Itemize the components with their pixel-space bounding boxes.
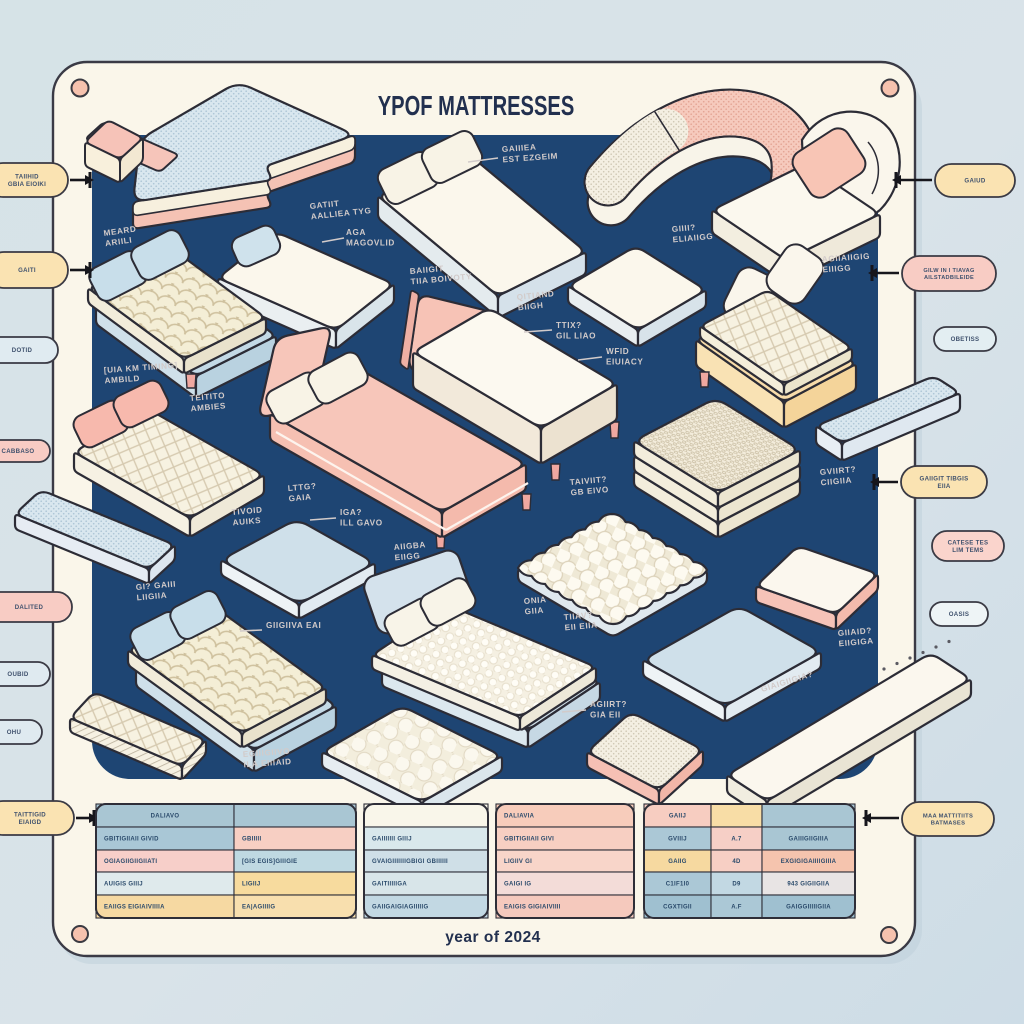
svg-text:GAIGI IG: GAIGI IG (504, 882, 531, 888)
svg-text:GAIIJ: GAIIJ (669, 814, 686, 820)
svg-text:GVAIGIIIIIIIGBIGI GBIIIIII: GVAIGIIIIIIIGBIGI GBIIIIII (372, 859, 448, 865)
svg-text:GBITIGIIAII GIVID: GBITIGIIAII GIVID (104, 837, 159, 843)
svg-text:GVIIIJ: GVIIIJ (668, 837, 687, 843)
svg-text:EIIA: EIIA (937, 483, 950, 490)
svg-text:EIUIACY: EIUIACY (606, 357, 643, 366)
svg-text:AUIGIS GIIIJ: AUIGIS GIIIJ (104, 882, 143, 888)
svg-text:CABBASO: CABBASO (2, 448, 35, 455)
svg-text:EA|AGIIIIG: EA|AGIIIIG (242, 905, 275, 911)
svg-text:GAIUD: GAIUD (964, 178, 985, 185)
svg-text:GBIIIII: GBIIIII (242, 837, 261, 843)
svg-text:YPOF MATTRESSES: YPOF MATTRESSES (378, 91, 575, 122)
svg-text:GAIIIGIIGIIIA: GAIIIGIIGIIIA (789, 837, 829, 843)
svg-text:GILW IN I TIAVAG: GILW IN I TIAVAG (923, 268, 974, 274)
svg-text:4D: 4D (732, 859, 741, 865)
svg-text:GBIA EIOIKI: GBIA EIOIKI (8, 181, 46, 188)
svg-text:DALITED: DALITED (15, 604, 44, 611)
svg-text:A.F: A.F (731, 905, 742, 911)
svg-text:GAIGGIIIIIGIIA: GAIGGIIIIIGIIA (786, 905, 831, 911)
svg-text:LIM TEMS: LIM TEMS (952, 547, 984, 554)
svg-text:OGIAGIIGIIGIIATI: OGIAGIIGIIGIIATI (104, 859, 157, 865)
svg-text:OASIS: OASIS (949, 611, 969, 618)
svg-text:MAGOVLID: MAGOVLID (346, 238, 395, 247)
svg-text:LIGIIJ: LIGIIJ (242, 882, 260, 888)
svg-text:EXGIGIGAIIIIGIIIA: EXGIGIGAIIIIGIIIA (781, 859, 837, 865)
svg-text:ILL GAVO: ILL GAVO (340, 518, 383, 527)
svg-text:GAIIG: GAIIG (668, 859, 687, 865)
svg-text:EIAIGD: EIAIGD (19, 819, 42, 826)
svg-text:GAITIIIIIGA: GAITIIIIIGA (372, 882, 407, 888)
svg-text:AGIIRT?: AGIIRT? (590, 700, 627, 709)
svg-text:D9: D9 (732, 882, 741, 888)
svg-text:TAIIHID: TAIIHID (15, 173, 39, 180)
svg-text:GIIA: GIIA (524, 606, 544, 617)
svg-text:GAIIGAIGIAGIIIIIG: GAIIGAIGIAGIIIIIG (372, 905, 428, 911)
svg-text:943 GIGIIGIIA: 943 GIGIIGIIA (787, 882, 830, 888)
svg-text:IGA?: IGA? (340, 508, 362, 517)
svg-text:OHU: OHU (7, 729, 22, 736)
svg-text:TTIX?: TTIX? (556, 321, 582, 330)
svg-text:CGXTIGII: CGXTIGII (663, 905, 692, 911)
svg-text:GBITIGIIAII GIVI: GBITIGIIAII GIVI (504, 837, 554, 843)
svg-text:GAIIGIT TIBGIS: GAIIGIT TIBGIS (920, 475, 969, 482)
svg-text:GIA EII: GIA EII (590, 710, 621, 719)
svg-text:WFID: WFID (606, 347, 629, 356)
svg-text:year of 2024: year of 2024 (445, 929, 541, 946)
svg-text:GIL LIAO: GIL LIAO (556, 331, 596, 340)
svg-text:[GIS EGIS]GIIIGIE: [GIS EGIS]GIIIGIE (242, 859, 297, 865)
svg-text:A.7: A.7 (731, 837, 742, 843)
svg-text:EAIGIS GIGIAIVIIII: EAIGIS GIGIAIVIIII (504, 905, 561, 911)
svg-text:MAA MATTITIITS: MAA MATTITIITS (923, 813, 973, 819)
svg-text:GAITI: GAITI (18, 267, 36, 274)
svg-text:OUBID: OUBID (7, 671, 28, 678)
svg-text:EAIIGS EIGIAIVIIIIA: EAIIGS EIGIAIVIIIIA (104, 905, 165, 911)
svg-text:LIGIIV GI: LIGIIV GI (504, 859, 532, 865)
svg-text:BATMASES: BATMASES (931, 821, 966, 827)
svg-text:DALIAVIA: DALIAVIA (504, 814, 535, 820)
svg-text:DOTID: DOTID (12, 347, 33, 354)
svg-text:GAIIIIIII GIIIJ: GAIIIIIII GIIIJ (372, 837, 412, 843)
svg-text:AGA: AGA (346, 228, 366, 237)
svg-text:TAITTIGID: TAITTIGID (14, 811, 46, 818)
svg-text:DALIAVO: DALIAVO (151, 814, 180, 820)
svg-text:AILSTADBILEIDE: AILSTADBILEIDE (924, 275, 974, 281)
svg-text:OBETISS: OBETISS (951, 336, 980, 343)
svg-text:CATESE TES: CATESE TES (948, 539, 989, 546)
svg-text:C1IF1I0: C1IF1I0 (666, 882, 690, 888)
svg-text:GIIGIIVA EAI: GIIGIIVA EAI (266, 621, 321, 630)
